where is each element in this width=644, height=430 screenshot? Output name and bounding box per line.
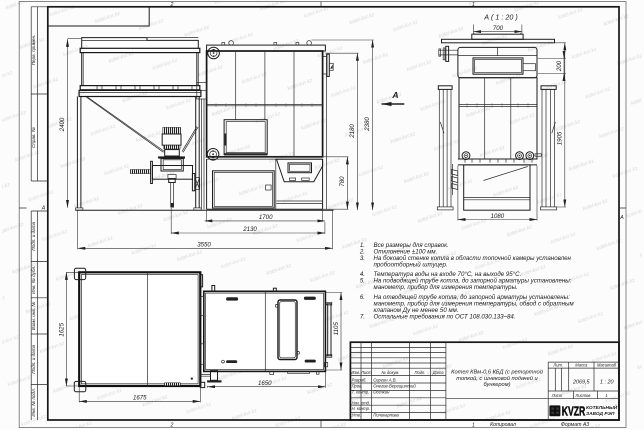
svg-text:Перв. примен.: Перв. примен. (31, 35, 36, 66)
svg-text:топкой, с шнековой подачей и: топкой, с шнековой подачей и (456, 375, 538, 382)
svg-text:Справ. №: Справ. № (31, 127, 36, 148)
svg-text:А: А (619, 215, 624, 221)
svg-text:5.: 5. (360, 278, 365, 285)
svg-text:Листов: Листов (575, 393, 592, 398)
svg-text:2069,5: 2069,5 (572, 380, 590, 386)
svg-text:Подп.: Подп. (415, 370, 426, 375)
svg-text:1: 1 (472, 422, 475, 428)
svg-text:1080: 1080 (491, 213, 505, 220)
svg-text:2400: 2400 (59, 117, 66, 132)
svg-text:Онегов-Верещинский: Онегов-Верещинский (373, 383, 416, 388)
svg-text:Формат А3: Формат А3 (561, 422, 589, 428)
svg-text:Взам. инв. №: Взам. инв. № (31, 302, 36, 330)
svg-text:Т. контр.: Т. контр. (352, 389, 370, 394)
svg-text:KVZR: KVZR (562, 404, 586, 419)
svg-text:3550: 3550 (197, 242, 211, 249)
svg-text:Дата: Дата (432, 370, 445, 375)
svg-text:2: 2 (170, 2, 174, 8)
svg-text:Лит.: Лит. (552, 363, 563, 368)
svg-text:Подп. и дата: Подп. и дата (31, 221, 36, 250)
svg-text:1905: 1905 (556, 131, 563, 145)
svg-text:Подп. и дата: Подп. и дата (31, 344, 36, 373)
svg-text:Разраб.: Разраб. (352, 378, 367, 383)
svg-text:Нач. отд.: Нач. отд. (352, 401, 370, 406)
svg-text:Пров.: Пров. (352, 383, 363, 388)
svg-text:700: 700 (493, 25, 504, 32)
svg-text:2380: 2380 (364, 117, 371, 132)
svg-text:Н. контр.: Н. контр. (352, 406, 370, 411)
svg-text:6.: 6. (360, 294, 365, 301)
svg-text:бункером): бункером) (483, 382, 510, 388)
svg-text:200: 200 (556, 60, 563, 72)
svg-text:1625: 1625 (58, 322, 65, 336)
svg-text:А ( 1 : 20 ): А ( 1 : 20 ) (483, 12, 518, 21)
svg-text:Масса: Масса (575, 363, 588, 368)
svg-text:Масштаб: Масштаб (597, 363, 617, 368)
svg-text:Осечкин: Осечкин (373, 389, 390, 394)
svg-text:1: 1 (605, 393, 607, 398)
svg-text:Утв.: Утв. (352, 412, 361, 417)
svg-text:780: 780 (339, 176, 346, 187)
svg-text:7.: 7. (360, 313, 365, 320)
svg-text:Копировал: Копировал (490, 422, 516, 428)
svg-text:1: 1 (472, 2, 475, 8)
svg-text:2180: 2180 (349, 124, 356, 139)
svg-text:Изм.: Изм. (351, 370, 360, 375)
svg-text:Лист: Лист (551, 393, 563, 398)
svg-text:1700: 1700 (259, 214, 273, 221)
svg-text:3.: 3. (360, 255, 365, 262)
svg-text:1105: 1105 (333, 322, 340, 336)
svg-text:Инв. № подл.: Инв. № подл. (31, 388, 36, 417)
svg-text:манометр, прибор для измерения: манометр, прибор для измерения температу… (374, 284, 518, 291)
svg-text:2: 2 (170, 422, 174, 428)
svg-text:пробоотборный штуцер.: пробоотборный штуцер. (374, 261, 448, 268)
svg-text:№ докум.: № докум. (381, 370, 399, 375)
svg-text:2130: 2130 (242, 226, 257, 233)
svg-text:1650: 1650 (258, 380, 272, 387)
svg-text:1675: 1675 (133, 395, 147, 402)
svg-text:ЗАВОД РЭП: ЗАВОД РЭП (586, 411, 615, 417)
svg-text:Котел КВм-0,6 КБД (с ретортной: Котел КВм-0,6 КБД (с ретортной (451, 368, 544, 375)
svg-text:А: А (391, 90, 398, 100)
svg-text:Инв. № дубл.: Инв. № дубл. (31, 266, 36, 294)
svg-text:Сергин А.В.: Сергин А.В. (373, 378, 396, 383)
svg-text:1 : 20: 1 : 20 (600, 380, 614, 386)
svg-text:Лист: Лист (360, 370, 372, 375)
svg-text:А: А (41, 206, 46, 212)
svg-text:Остальные требования по ОСТ 10: Остальные требования по ОСТ 108.030.133–… (374, 313, 516, 320)
svg-text:Поликарпова: Поликарпова (373, 412, 399, 417)
